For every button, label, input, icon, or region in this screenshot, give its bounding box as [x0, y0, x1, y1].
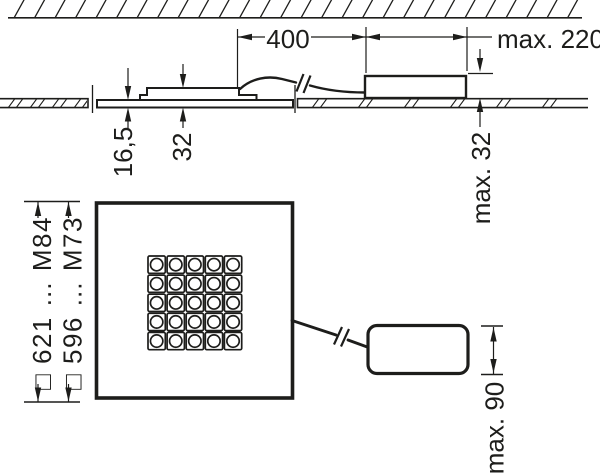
hatch-line — [74, 99, 81, 109]
hatch-line — [16, 99, 23, 109]
panel-flange — [97, 100, 293, 108]
ceiling-tile-right-section — [298, 99, 589, 109]
dim-label-32: 32 — [167, 133, 197, 162]
hatch-line — [52, 99, 59, 109]
hatch-line — [458, 99, 465, 109]
cable-line-1 — [240, 78, 296, 89]
hatch-line — [496, 99, 503, 109]
hatch-line — [550, 99, 557, 109]
driver-box-section — [365, 76, 466, 98]
dim-label-outer: □ 621 … M84 — [27, 216, 57, 390]
cable-line-1 — [292, 321, 336, 336]
hatch-line — [404, 0, 415, 18]
hatch-line — [60, 99, 67, 109]
cable-break-icon — [297, 74, 311, 93]
hatch-line — [424, 0, 435, 18]
hatch-line — [240, 0, 251, 18]
hatch-line — [412, 99, 419, 109]
structural-ceiling-section — [8, 0, 582, 18]
hatch-line — [117, 0, 128, 18]
tile-left-hatch — [8, 99, 89, 109]
arrow-down-icon — [180, 74, 186, 88]
break-slash — [341, 329, 349, 347]
dimension-max-90: max. 90 — [480, 326, 510, 473]
cable-plan — [292, 321, 370, 349]
dim-label-max-32: max. 32 — [466, 132, 496, 225]
dim-label-inner: □ 596 … M73 — [58, 216, 88, 390]
dim-label-max-90: max. 90 — [480, 382, 510, 473]
arrow-up-icon — [35, 202, 41, 216]
hatch-line — [199, 0, 210, 18]
hatch-line — [30, 99, 37, 109]
arrow-left-icon — [366, 34, 380, 40]
hatch-line — [358, 99, 365, 109]
hatch-line — [281, 0, 292, 18]
dimension-max-32: max. 32 — [466, 49, 496, 224]
hatch-line — [542, 99, 549, 109]
hatch-line — [35, 0, 46, 18]
dimension-32: 32 — [167, 64, 197, 161]
hatch-line — [96, 0, 107, 18]
hatch-line — [14, 0, 25, 18]
hatch-line — [450, 99, 457, 109]
hatch-line — [404, 99, 411, 109]
cable-break-icon — [334, 327, 349, 347]
hatch-line — [445, 0, 456, 18]
arrow-right-icon — [352, 34, 366, 40]
dimension-outer-size: □ 621 … M84 □ 596 … M73 — [24, 202, 88, 403]
arrow-down-icon — [490, 359, 496, 373]
hatch-line — [137, 0, 148, 18]
hatch-line — [219, 0, 230, 18]
hatch-line — [486, 0, 497, 18]
technical-drawing: 400 max. 220 max. 32 16,5 32 — [0, 0, 600, 473]
arrow-up-icon — [125, 108, 131, 122]
hatch-line — [260, 0, 271, 18]
dim-label-max-220: max. 220 — [497, 24, 600, 54]
hatch-line — [363, 0, 374, 18]
tile-right-outline — [298, 99, 589, 108]
panel-body — [140, 88, 257, 100]
hatch-line — [158, 0, 169, 18]
hatch-line — [178, 0, 189, 18]
hatch-line — [383, 0, 394, 18]
hatch-line — [55, 0, 66, 18]
ceiling-hatch-pattern — [14, 0, 578, 18]
ceiling-tile-left-section — [0, 99, 89, 109]
arrow-right-icon — [453, 34, 467, 40]
dimension-16-5: 16,5 — [108, 68, 138, 177]
arrow-up-icon — [65, 202, 71, 216]
break-slash — [297, 74, 304, 92]
hatch-line — [506, 0, 517, 18]
hatch-line — [38, 99, 45, 109]
hatch-line — [322, 0, 333, 18]
arrow-down-icon — [125, 86, 131, 100]
cable-section — [240, 74, 365, 93]
arrow-down-icon — [477, 58, 483, 72]
hatch-line — [504, 99, 511, 109]
dim-label-400: 400 — [266, 24, 309, 54]
hatch-line — [366, 99, 373, 109]
arrow-up-icon — [477, 98, 483, 112]
arrow-left-icon — [238, 34, 252, 40]
hatch-line — [547, 0, 558, 18]
dimension-max-220: max. 220 — [366, 24, 600, 73]
hatch-line — [342, 0, 353, 18]
dim-label-16-5: 16,5 — [108, 127, 138, 178]
hatch-line — [568, 0, 579, 18]
hatch-line — [320, 99, 327, 109]
panel-plan — [97, 203, 293, 398]
hatch-line — [312, 99, 319, 109]
hatch-line — [301, 0, 312, 18]
hatch-line — [8, 99, 15, 109]
break-slash — [304, 76, 311, 94]
driver-box-plan — [368, 326, 468, 374]
hatch-line — [465, 0, 476, 18]
arrow-up-icon — [180, 108, 186, 122]
hatch-line — [527, 0, 538, 18]
arrow-up-icon — [490, 328, 496, 342]
cable-line-2 — [310, 86, 365, 93]
tile-right-hatch — [312, 99, 557, 109]
hatch-line — [76, 0, 87, 18]
